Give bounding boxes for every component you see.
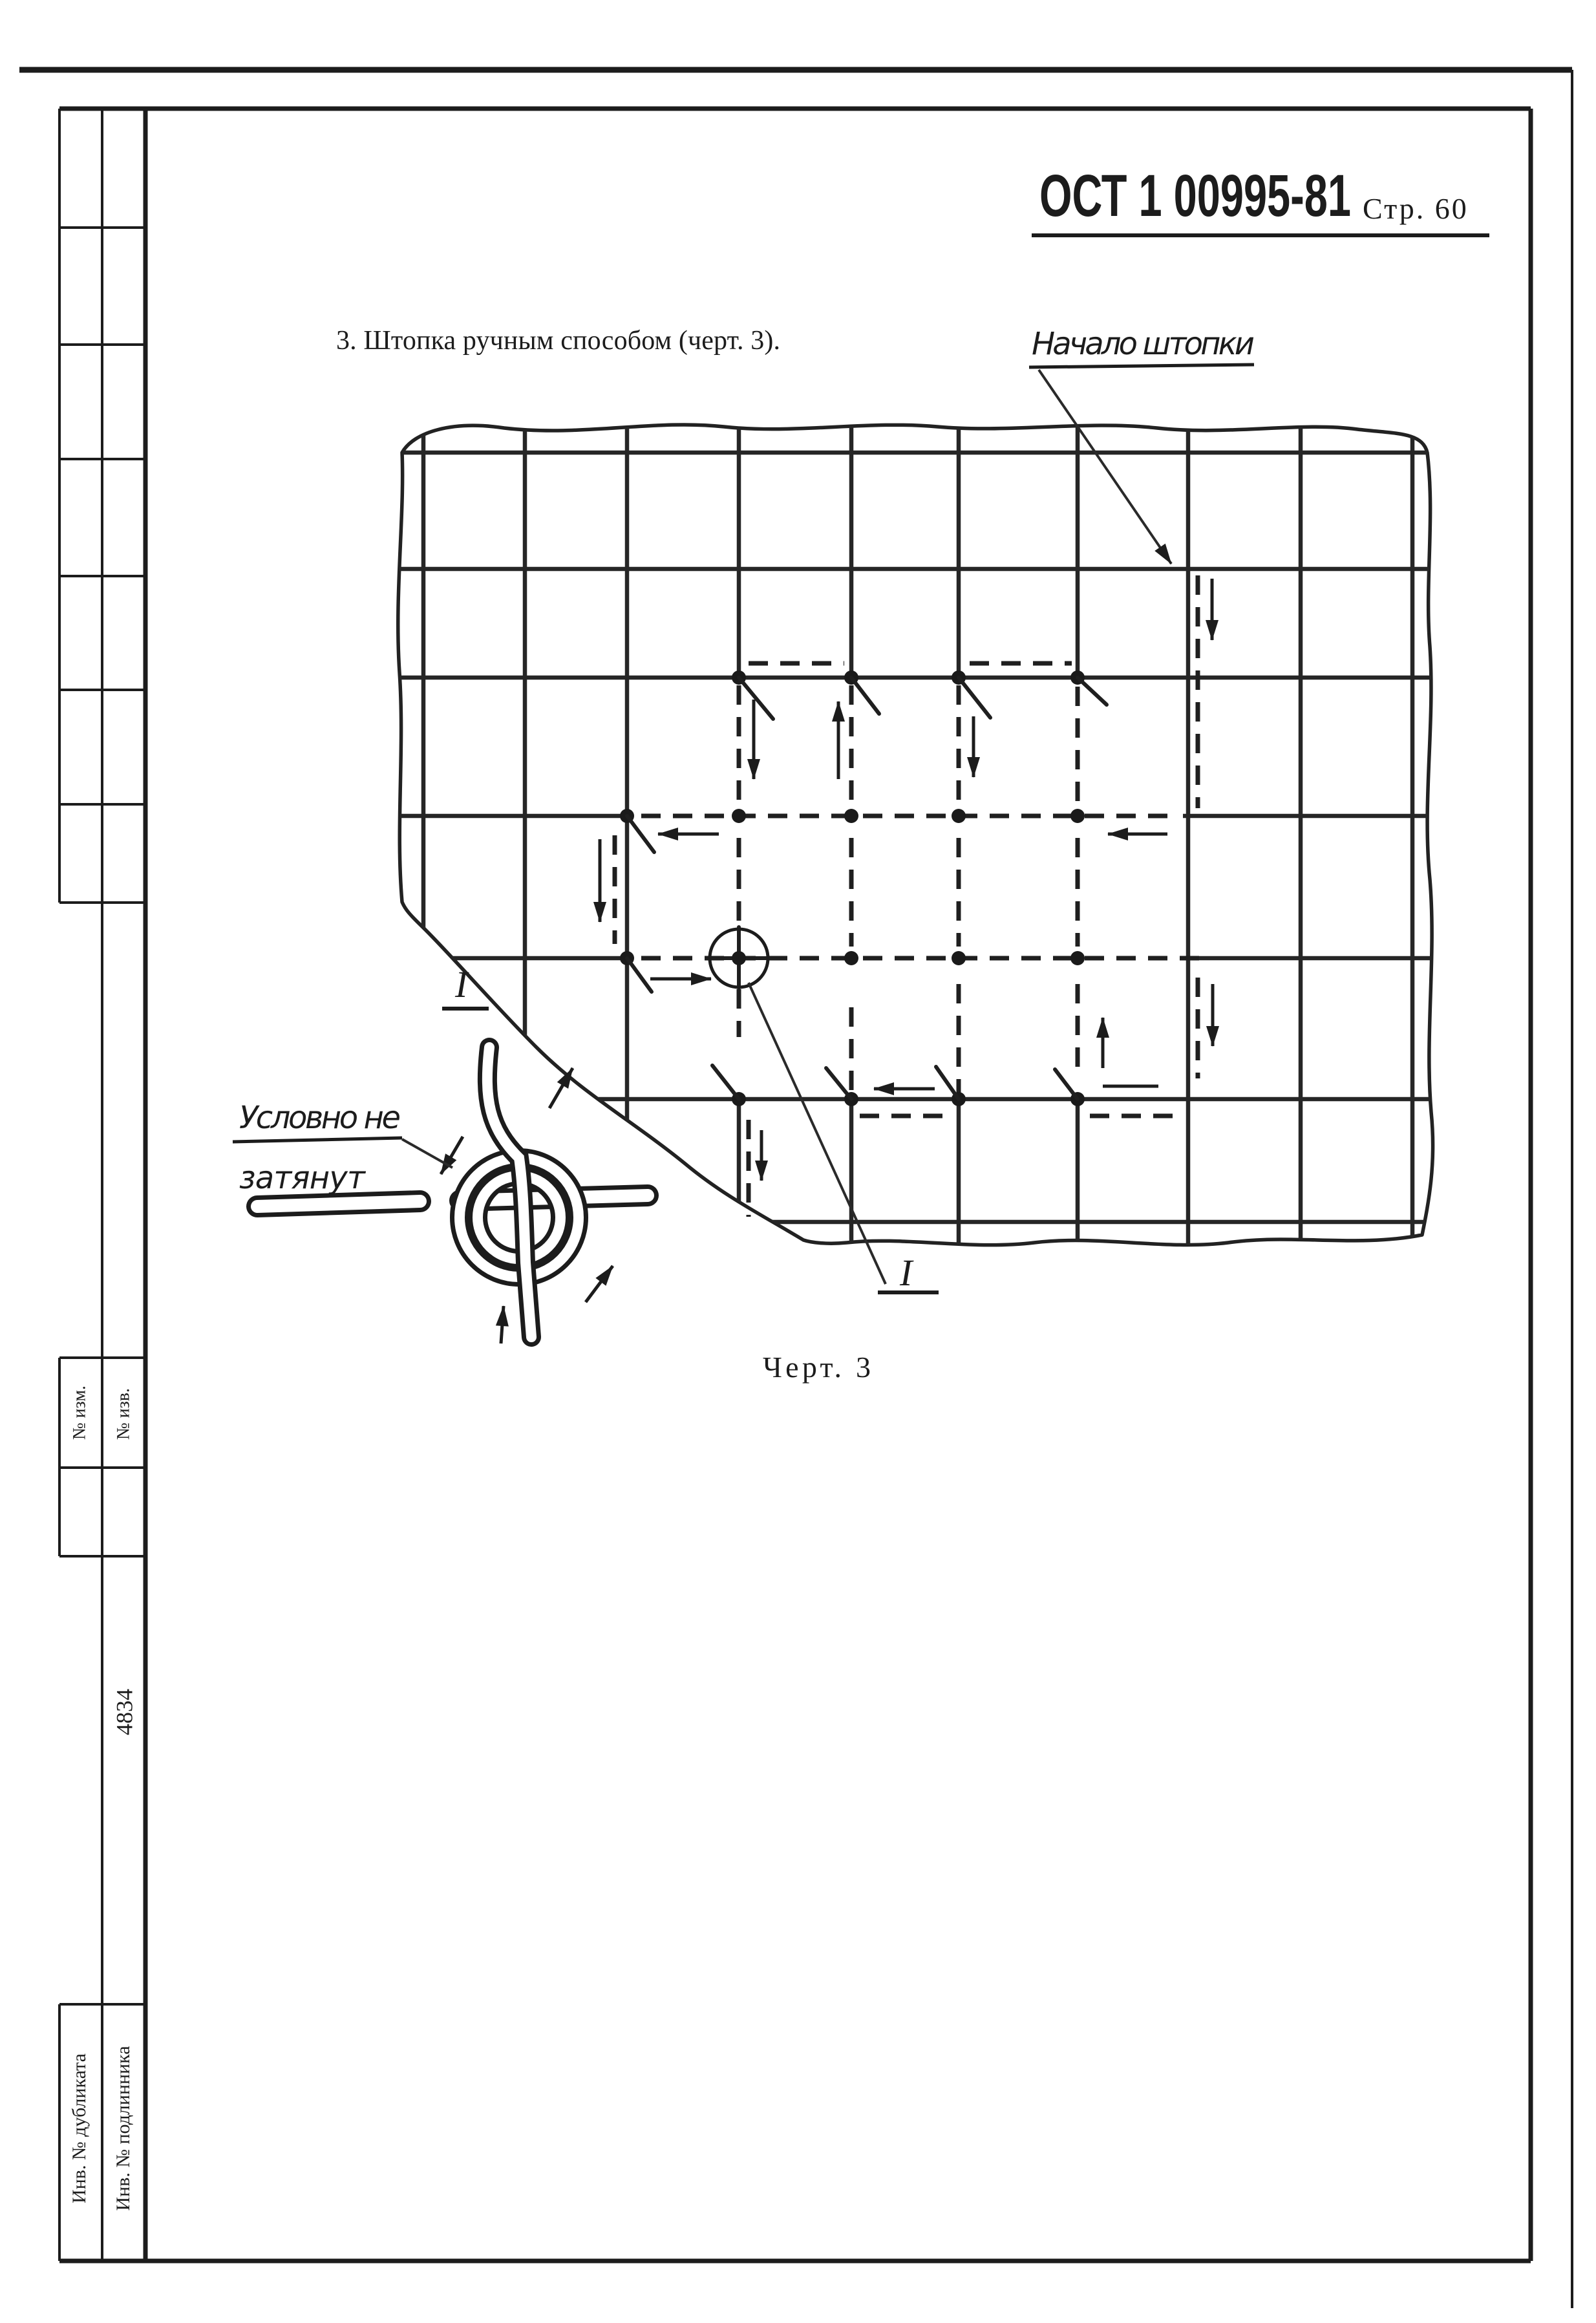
label-knot-line2: затянут — [239, 1160, 367, 1196]
standard-number: ОСТ 1 00995-81 — [1039, 163, 1351, 229]
section-label-bottom: I — [899, 1252, 914, 1294]
document-page: № изм. № изв. 4834 Инв. № дубликата Инв.… — [0, 0, 1596, 2323]
label-knot-line1: Условно не — [239, 1100, 401, 1136]
knot-callout: Условно не затянут — [233, 1100, 452, 1196]
figure-caption: Черт. 3 — [763, 1351, 873, 1384]
sidebar-inv-duplicate: Инв. № дубликата — [69, 2053, 90, 2203]
sidebar-inv-original: Инв. № подлинника — [112, 2046, 134, 2211]
fabric-grid — [388, 407, 1448, 1261]
page-header: ОСТ 1 00995-81 Стр. 60 — [1032, 163, 1489, 235]
page-number: Стр. 60 — [1363, 192, 1469, 225]
doc-title: 3. Штопка ручным способом (черт. 3). — [336, 326, 782, 356]
scanned-page: № изм. № изв. 4834 Инв. № дубликата Инв.… — [0, 0, 1596, 2323]
sidebar-no-izm: № изм. — [69, 1386, 89, 1440]
darning-figure: Начало штопки I I — [233, 326, 1448, 1384]
sidebar-no-izv: № изв. — [113, 1388, 133, 1440]
start-callout: Начало штопки — [1029, 326, 1255, 564]
darning-hole — [631, 684, 1183, 1094]
label-start-of-darning: Начало штопки — [1032, 326, 1255, 362]
section-label-left: I — [454, 963, 469, 1005]
sidebar-form-number: 4834 — [111, 1689, 137, 1735]
